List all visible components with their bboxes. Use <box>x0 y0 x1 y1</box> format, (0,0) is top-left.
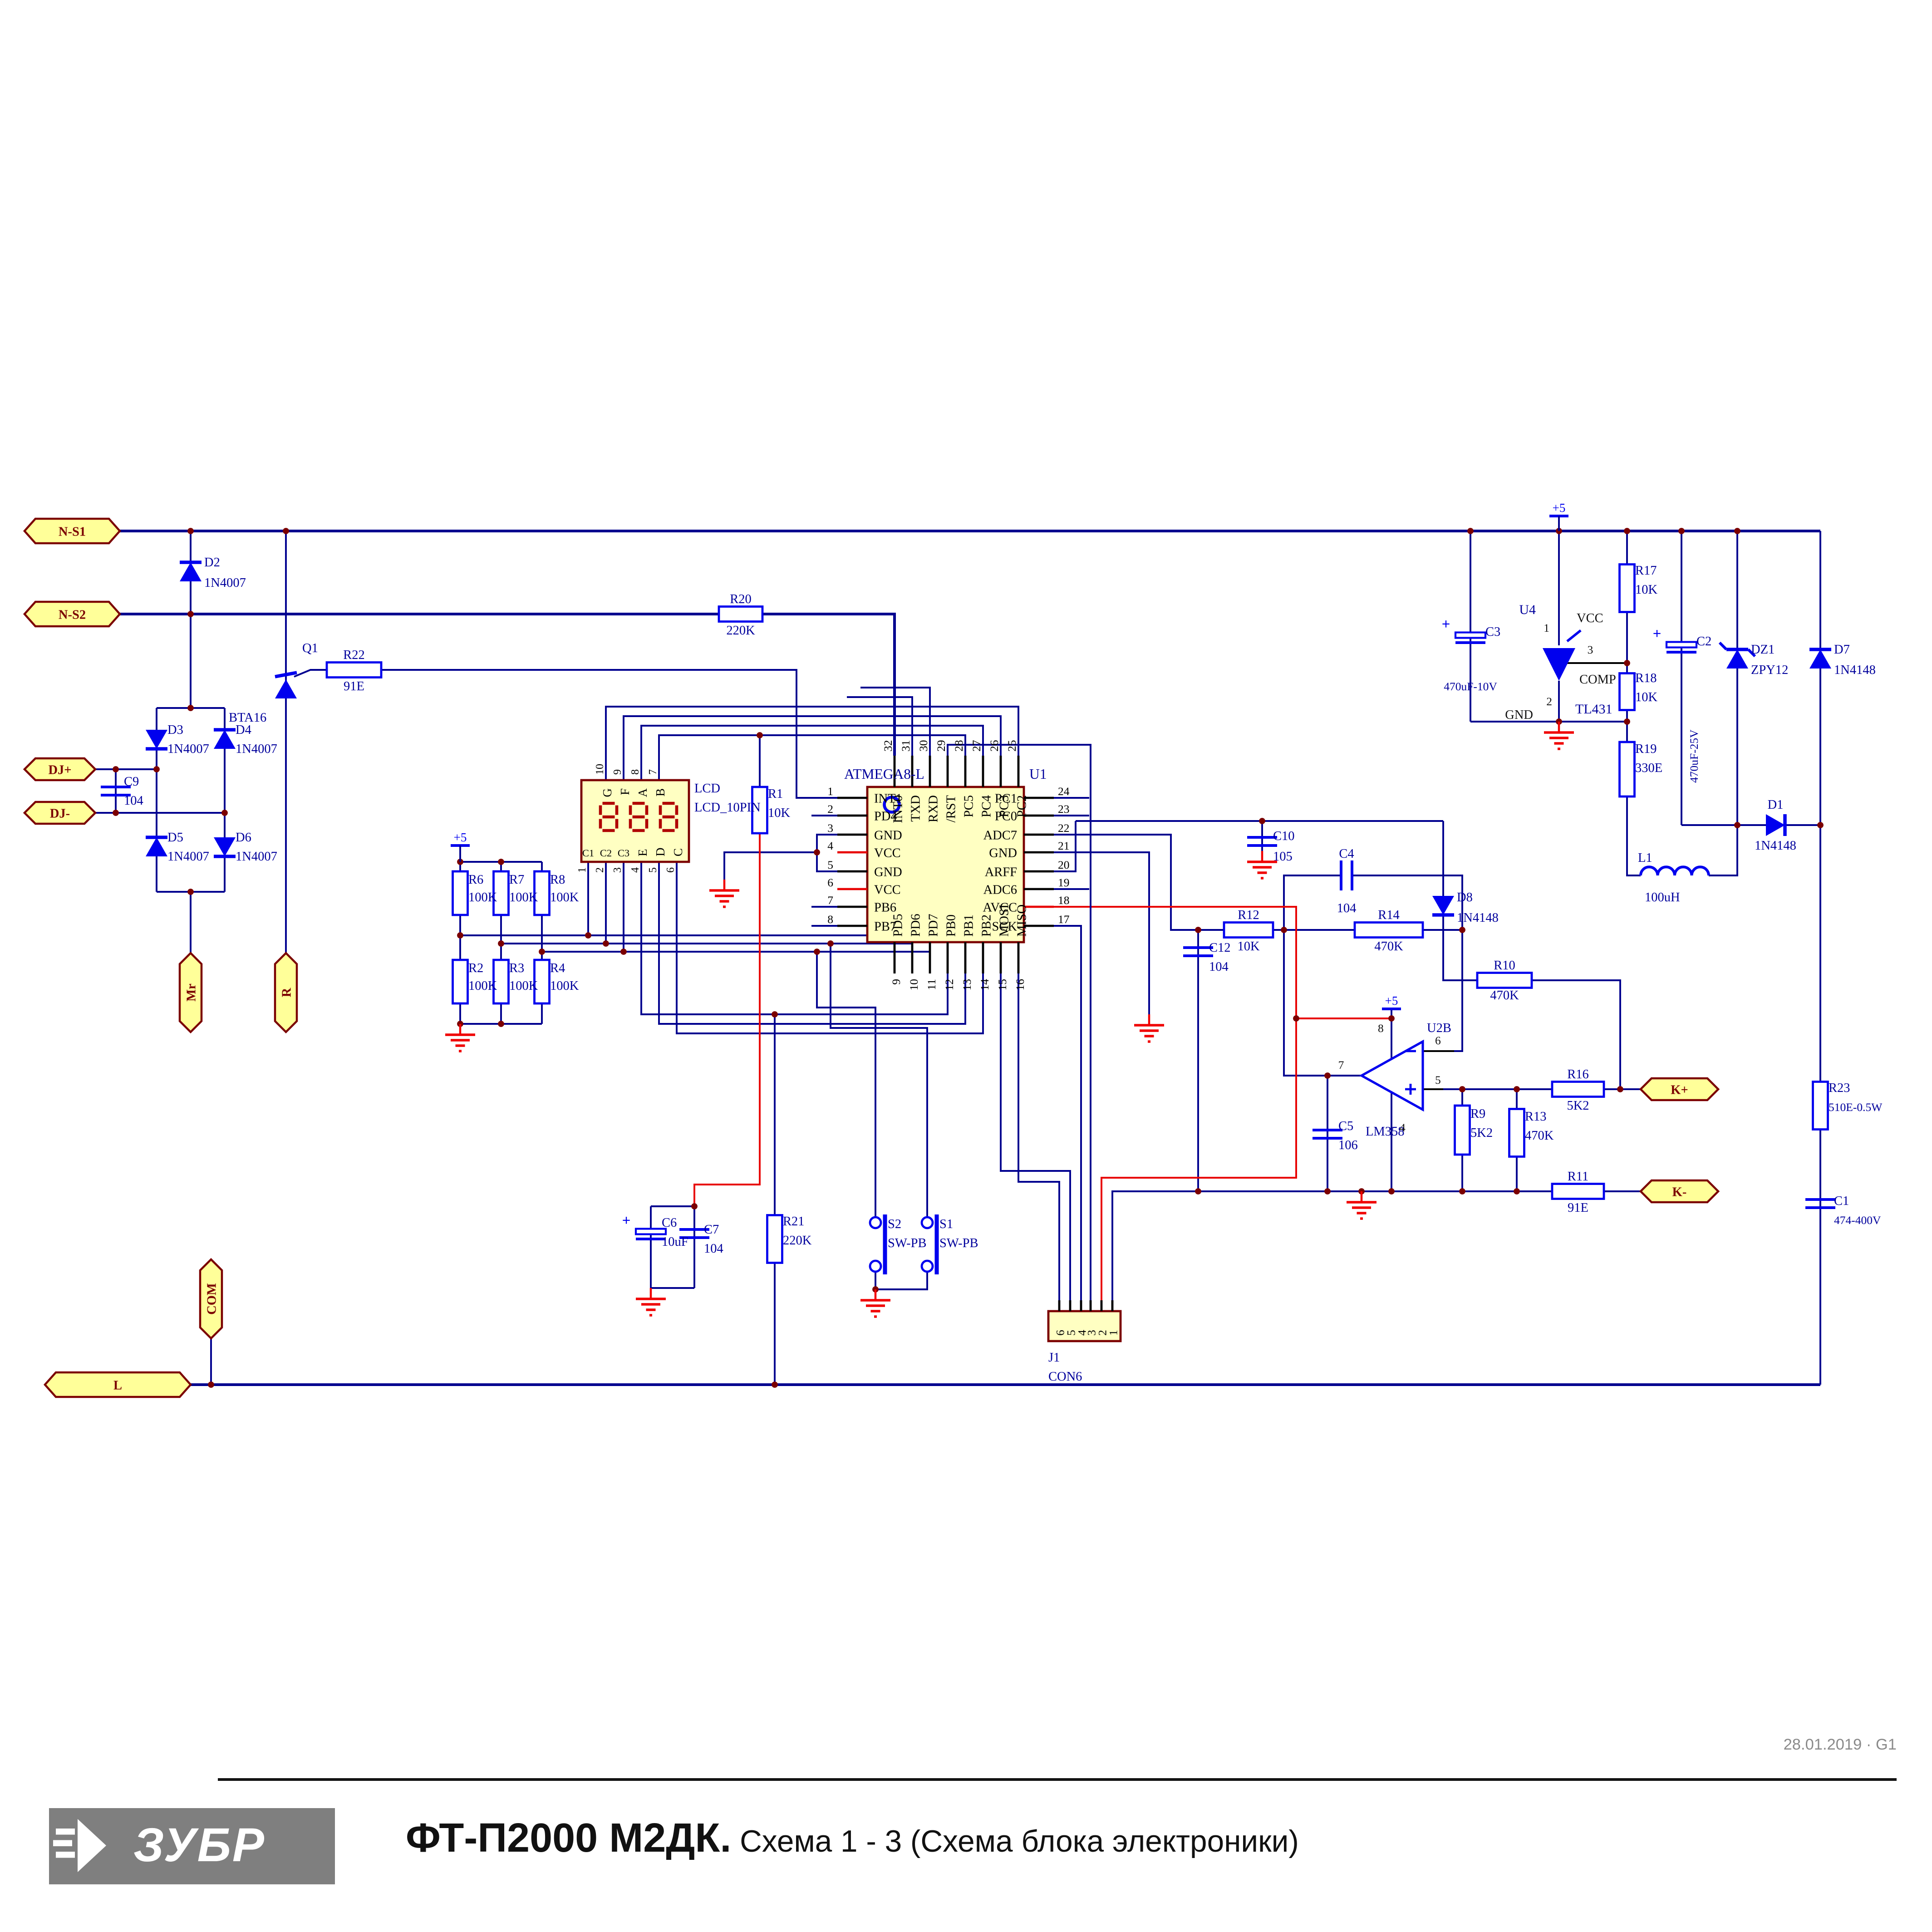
component-label: 510E-0.5W <box>1829 1101 1883 1114</box>
connector-label: N-S1 <box>59 525 86 539</box>
junction-dot <box>1624 718 1630 725</box>
connector-label: N-S2 <box>59 608 86 622</box>
lcd-pin-name: F <box>618 788 632 795</box>
wire <box>724 852 817 880</box>
junction-dot <box>1624 660 1630 666</box>
mcu-pin-name: PC3 <box>998 795 1012 817</box>
mcu-pin-name: VCC <box>874 883 901 897</box>
component-label: R14 <box>1378 908 1400 922</box>
revision-date: 28.01.2019 · G1 <box>1784 1737 1897 1754</box>
junction-dot <box>498 940 504 947</box>
schematic-canvas: +++1INT12PD43GND4VCC5GND6VCC7PB68PB724PC… <box>0 0 1932 1932</box>
resistor-R19 <box>1620 742 1635 796</box>
component-label: 1N4148 <box>1834 663 1876 677</box>
wire <box>1709 825 1737 875</box>
brand-arrow-icon <box>49 1811 133 1882</box>
component-label: 100K <box>509 979 538 993</box>
junction-dot <box>1459 1086 1465 1092</box>
wire <box>1054 835 1225 930</box>
mcu-pin-number: 17 <box>1058 913 1070 926</box>
mcu-pin-number: 23 <box>1058 802 1070 816</box>
page-title: ФТ-П2000 М2ДК. Схема 1 - 3 (Схема блока … <box>406 1816 1299 1863</box>
component-label: LCD <box>694 782 720 796</box>
mcu-pin-number: 3 <box>827 821 833 835</box>
mcu-pin-name: PD5 <box>891 914 905 937</box>
junction-dot <box>1617 1086 1623 1092</box>
lcd-pin-number: 6 <box>665 867 677 873</box>
component-label: U4 <box>1519 602 1536 617</box>
component-label: GND <box>1505 708 1533 722</box>
component-label: L1 <box>1638 851 1652 865</box>
component-label: 4 <box>1400 1121 1406 1134</box>
component-label: 220K <box>783 1234 812 1248</box>
component-label: R17 <box>1635 564 1657 578</box>
component-label: R20 <box>730 592 752 606</box>
junction-dot <box>814 849 820 855</box>
lcd-pin-name: E <box>636 849 649 857</box>
junction-dot <box>772 1381 778 1388</box>
diode-D4 <box>214 730 236 749</box>
component-label: R3 <box>509 961 524 975</box>
resistor-R12 <box>1224 923 1273 938</box>
component-label: 100K <box>468 890 497 905</box>
resistor-R20 <box>719 607 762 622</box>
mcu-pin-number: 4 <box>827 839 833 852</box>
resistor-R17 <box>1620 565 1635 612</box>
lcd-pin-number: 10 <box>594 764 606 775</box>
mcu-pin-number: 32 <box>881 740 895 752</box>
component-label: R8 <box>550 873 565 887</box>
component-label: C2 <box>1696 634 1711 649</box>
lcd-pin-number: 1 <box>576 867 588 873</box>
component-label: 91E <box>1568 1201 1588 1215</box>
junction-dot <box>113 766 119 772</box>
lcd-pin-number: 5 <box>647 867 659 873</box>
component-label: 100K <box>550 890 579 905</box>
component-label: SW-PB <box>939 1236 978 1250</box>
mcu-pin-number: 15 <box>996 979 1009 991</box>
mcu-pin-number: 2 <box>827 802 833 816</box>
resistor-R10 <box>1477 973 1532 988</box>
wire <box>1454 930 1462 1051</box>
component-label: 10K <box>1635 583 1658 597</box>
diode-D3 <box>146 730 167 749</box>
component-label: DZ1 <box>1751 643 1775 657</box>
wire <box>1018 973 1059 1300</box>
component-label: ATMEGA8-L <box>844 766 924 782</box>
junction-dot <box>498 859 504 865</box>
resistor-R22 <box>327 663 381 678</box>
component-label: 100uH <box>1645 890 1680 905</box>
component-label: 1N4007 <box>236 742 277 756</box>
component-label: R10 <box>1494 959 1515 973</box>
component-label: 1N4148 <box>1755 839 1796 853</box>
diode-D8 <box>1432 896 1454 915</box>
plus5-label: +5 <box>1553 501 1566 515</box>
junction-dot <box>585 932 591 939</box>
connector-label: K- <box>1672 1185 1687 1200</box>
tl431-U4 <box>1543 648 1575 681</box>
resistor-R13 <box>1509 1109 1524 1157</box>
component-label: D8 <box>1457 890 1473 905</box>
mcu-pin-number: 19 <box>1058 876 1070 889</box>
junction-dot <box>221 810 228 816</box>
component-label: C12 <box>1209 941 1231 955</box>
component-label: R2 <box>468 961 483 975</box>
component-label: 330E <box>1635 761 1662 775</box>
mcu-pin-name: PC4 <box>980 795 994 817</box>
mcu-pin-name: RXD <box>927 795 941 822</box>
component-label: 470K <box>1525 1129 1554 1143</box>
diode-D1 <box>1766 814 1785 836</box>
diode-D6 <box>214 837 236 856</box>
mcu-pin-number: 13 <box>960 979 973 991</box>
component-label: 470K <box>1374 939 1403 954</box>
resistor-R6 <box>453 871 468 915</box>
component-label: R18 <box>1635 671 1657 685</box>
component-label: 2 <box>1546 695 1552 708</box>
component-label: 1N4007 <box>204 576 246 590</box>
junction-dot <box>457 932 463 939</box>
junction-dot <box>283 528 289 534</box>
component-label: 104 <box>1209 960 1229 974</box>
resistor-R2 <box>453 960 468 1003</box>
title-model: ФТ-П2000 М2ДК. <box>406 1816 731 1861</box>
connector-label: L <box>113 1379 122 1393</box>
component-label: D3 <box>167 723 183 737</box>
component-label: U2B <box>1427 1021 1451 1035</box>
resistor-R16 <box>1552 1082 1604 1097</box>
component-label: BTA16 <box>229 711 266 725</box>
component-label: D6 <box>236 831 251 845</box>
component-label: VCC <box>1577 611 1603 625</box>
brand-logo: ЗУБР <box>49 1808 335 1884</box>
mcu-pin-name: MISO <box>1015 905 1029 937</box>
junction-dot <box>603 940 609 947</box>
mcu-pin-number: 28 <box>952 740 965 752</box>
component-label: 1N4007 <box>236 850 277 864</box>
component-label: LCD_10PIN <box>694 801 761 815</box>
component-label: S1 <box>939 1217 953 1231</box>
junction-dot <box>1324 1188 1331 1195</box>
component-label: CON6 <box>1048 1370 1082 1384</box>
mcu-pin-number: 21 <box>1058 839 1070 852</box>
junction-dot <box>498 1021 504 1027</box>
mcu-pin-name: PD7 <box>927 914 941 937</box>
wire <box>294 670 327 677</box>
wire <box>542 952 930 973</box>
mcu-pin-number: 27 <box>970 740 983 752</box>
mcu-pin-number: 25 <box>1005 740 1018 752</box>
mcu-pin-name: PB1 <box>962 914 976 937</box>
mcu-pin-number: 22 <box>1058 821 1070 835</box>
mcu-pin-name: INT0 <box>891 795 905 823</box>
lcd-pin-number: 3 <box>612 867 624 873</box>
mcu-pin-name: GND <box>874 829 902 843</box>
switch-S2 <box>870 1261 881 1272</box>
resistor-R18 <box>1620 673 1635 710</box>
mcu-pin-number: 8 <box>827 913 833 926</box>
mcu-pin-number: 11 <box>925 979 938 990</box>
title-block: ЗУБР ФТ-П2000 М2ДК. Схема 1 - 3 (Схема б… <box>0 1805 1932 1901</box>
lcd-pin-name: G <box>600 788 614 797</box>
tl431-ref <box>1567 630 1581 641</box>
junction-dot <box>827 940 834 947</box>
component-label: 5K2 <box>1567 1099 1589 1113</box>
mcu-pin-name: ARFF <box>985 865 1017 880</box>
junction-dot <box>1459 1188 1465 1195</box>
junction-dot <box>187 528 194 534</box>
lcd-pin-name: C2 <box>600 847 612 859</box>
mcu-pin-number: 5 <box>827 858 833 871</box>
component-label: 3 <box>1588 643 1593 656</box>
title-subtitle: Схема 1 - 3 (Схема блока электроники) <box>731 1824 1299 1858</box>
component-label: R1 <box>768 787 783 801</box>
triac-Q1 <box>275 673 297 677</box>
mcu-pin-number: 20 <box>1058 858 1070 871</box>
component-label: 5K2 <box>1470 1126 1493 1140</box>
component-label: C1 <box>1834 1194 1849 1208</box>
mcu-pin-name: PC5 <box>962 795 976 817</box>
j1-body <box>1048 1311 1121 1341</box>
connector-label: DJ- <box>50 807 70 821</box>
junction-dot <box>1678 528 1685 534</box>
mcu-pin-name: VCC <box>874 846 901 860</box>
resistor-R11 <box>1552 1184 1604 1199</box>
mcu-pin-number: 29 <box>934 740 948 752</box>
component-label: C5 <box>1338 1119 1353 1133</box>
lcd-pin-name: C <box>671 848 685 856</box>
wire <box>381 670 837 798</box>
component-label: 106 <box>1338 1138 1358 1152</box>
connector-label: DJ+ <box>48 763 71 777</box>
component-label: 220K <box>726 624 755 638</box>
mcu-pin-name: GND <box>989 846 1017 860</box>
junction-dot <box>1734 528 1740 534</box>
junction-dot <box>187 705 194 711</box>
component-label: 10K <box>1635 690 1658 704</box>
lcd-pin-number: 7 <box>647 769 659 775</box>
component-label: 8 <box>1378 1022 1384 1035</box>
plus5-label: +5 <box>454 831 467 844</box>
resistor-R9 <box>1455 1106 1470 1155</box>
capacitor-C3 <box>1455 633 1485 638</box>
mcu-pin-name: ADC7 <box>983 829 1017 843</box>
junction-dot <box>153 766 160 772</box>
mcu-pin-number: 31 <box>899 740 912 752</box>
diode-D7 <box>1809 649 1831 669</box>
capacitor-C2 <box>1667 642 1696 648</box>
component-label: 470uF-25V <box>1687 729 1701 783</box>
junction-dot <box>620 949 627 955</box>
component-label: Q1 <box>302 641 318 655</box>
component-label: 10K <box>768 806 791 820</box>
component-label: R11 <box>1568 1170 1588 1184</box>
component-label: 104 <box>1337 901 1357 915</box>
brand-name: ЗУБР <box>133 1819 265 1873</box>
mcu-pin-number: 16 <box>1013 979 1027 991</box>
component-label: 1N4148 <box>1457 911 1499 925</box>
mcu-pin-name: PB0 <box>944 914 959 937</box>
component-label: R16 <box>1567 1067 1589 1082</box>
component-label: R6 <box>468 873 483 887</box>
component-label: R21 <box>783 1214 805 1229</box>
triac-Q1 <box>275 679 297 698</box>
footer-divider <box>218 1778 1897 1780</box>
component-label: 91E <box>344 679 364 693</box>
component-label: 104 <box>124 794 143 808</box>
junction-dot <box>187 611 194 617</box>
lcd-pin-number: 2 <box>594 867 606 873</box>
plus-mark: + <box>1442 616 1450 633</box>
junction-dot <box>1459 927 1465 933</box>
plus-mark: + <box>622 1213 631 1229</box>
component-label: 10uF <box>662 1235 688 1249</box>
lcd-pin-number: 4 <box>629 867 641 873</box>
junction-dot <box>1467 528 1474 534</box>
junction-dot <box>1388 1188 1395 1195</box>
component-label: R13 <box>1525 1110 1547 1124</box>
resistor-R21 <box>767 1215 782 1263</box>
lcd-pin-name: C1 <box>582 847 594 859</box>
mcu-pin-name: PB6 <box>874 901 896 915</box>
component-label: R22 <box>343 648 365 662</box>
junction-dot <box>814 949 820 955</box>
mcu-pin-number: 1 <box>827 785 833 798</box>
lcd-pin-number: 9 <box>612 769 624 775</box>
component-label: C4 <box>1339 847 1354 861</box>
junction-dot <box>1817 822 1824 828</box>
junction-dot <box>539 949 545 955</box>
component-label: 470uF-10V <box>1444 680 1497 693</box>
component-label: 474-400V <box>1834 1214 1881 1227</box>
switch-S2 <box>870 1217 881 1228</box>
component-label: 470K <box>1490 988 1519 1003</box>
component-label: U1 <box>1029 766 1047 782</box>
mcu-pin-number: 30 <box>917 740 930 752</box>
resistor-R23 <box>1813 1082 1828 1130</box>
mcu-pin-number: 9 <box>890 979 903 985</box>
junction-dot <box>757 732 763 738</box>
junction-dot <box>1281 927 1287 933</box>
switch-S1 <box>922 1261 933 1272</box>
junction-dot <box>187 889 194 895</box>
component-label: D4 <box>236 723 251 737</box>
schematic-page: +++1INT12PD43GND4VCC5GND6VCC7PB68PB724PC… <box>0 0 1932 1932</box>
component-label: C10 <box>1273 829 1295 843</box>
component-label: C9 <box>124 775 139 789</box>
mcu-pin-name: MOSI <box>998 905 1012 937</box>
component-label: 1N4007 <box>167 742 209 756</box>
component-label: 1N4007 <box>167 850 209 864</box>
mcu-pin-name: PB2 <box>980 914 994 937</box>
mcu-pin-number: 6 <box>827 876 833 889</box>
component-label: R19 <box>1635 742 1657 756</box>
connector-label: Mr <box>185 983 199 1002</box>
connector-label: K+ <box>1671 1083 1688 1097</box>
lcd-pin-number: 8 <box>629 769 641 775</box>
mcu-pin-name: GND <box>874 865 902 880</box>
component-label: 100K <box>509 890 538 905</box>
mcu-pin-name: PC2 <box>1015 795 1029 817</box>
junction-dot <box>1388 1015 1395 1022</box>
component-label: C3 <box>1485 625 1500 639</box>
junction-dot <box>113 810 119 816</box>
wire <box>1284 875 1341 930</box>
mcu-pin-number: 12 <box>943 979 956 991</box>
component-label: 100K <box>550 979 579 993</box>
component-label: C7 <box>704 1223 719 1237</box>
junction-dot <box>1734 822 1740 828</box>
component-label: 6 <box>1435 1034 1441 1047</box>
junction-dot <box>208 1381 214 1388</box>
junction-dot <box>1259 818 1265 824</box>
component-label: R12 <box>1238 908 1259 922</box>
component-label: D7 <box>1834 643 1850 657</box>
junction-dot <box>1624 528 1630 534</box>
zener-tick <box>1720 643 1726 649</box>
junction-dot <box>1324 1072 1331 1079</box>
component-label: ZPY12 <box>1751 663 1788 677</box>
component-label: 10K <box>1237 939 1260 954</box>
j1-pin-number: 1 <box>1107 1330 1120 1336</box>
junction-dot <box>691 1203 698 1209</box>
wire <box>1112 1191 1198 1300</box>
junction-dot <box>1195 927 1201 933</box>
switch-S1 <box>922 1217 933 1228</box>
mcu-pin-number: 26 <box>988 740 1001 752</box>
component-label: LM358 <box>1366 1125 1405 1139</box>
plus-mark: + <box>1653 626 1662 642</box>
mcu-pin-number: 18 <box>1058 894 1070 907</box>
component-label: 105 <box>1273 850 1293 864</box>
component-label: R9 <box>1470 1107 1485 1121</box>
junction-dot <box>1293 1015 1299 1022</box>
diode-D5 <box>146 837 167 856</box>
component-label: COMP <box>1579 673 1616 687</box>
junction-dot <box>772 1011 778 1018</box>
mcu-pin-number: 7 <box>827 894 833 907</box>
wire <box>641 726 983 780</box>
wire <box>1054 926 1081 1300</box>
component-label: C6 <box>662 1216 677 1230</box>
lcd-pin-name: D <box>654 848 667 857</box>
mcu-pin-name: ADC6 <box>983 883 1017 897</box>
component-label: SW-PB <box>888 1236 927 1250</box>
inductor-L1 <box>1641 867 1709 875</box>
mcu-pin-name: /RST <box>944 795 959 822</box>
connector-label: COM <box>205 1283 219 1315</box>
lcd-pin-name: C3 <box>618 847 629 859</box>
plus5-label: +5 <box>1385 994 1398 1008</box>
connector-label: R <box>280 988 294 997</box>
component-label: D1 <box>1768 798 1784 812</box>
component-label: R23 <box>1829 1081 1850 1095</box>
diode-D2 <box>180 562 202 581</box>
resistor-R14 <box>1355 923 1423 938</box>
mcu-pin-number: 14 <box>978 979 991 991</box>
mcu-pin-name: TXD <box>909 795 923 822</box>
mcu-pin-number: 10 <box>907 979 920 991</box>
component-label: 100K <box>468 979 497 993</box>
component-label: J1 <box>1048 1351 1060 1365</box>
junction-dot <box>1514 1086 1520 1092</box>
lcd-pin-name: A <box>636 788 649 797</box>
component-label: TL431 <box>1575 702 1612 717</box>
lcd-pin-name: B <box>654 788 667 796</box>
junction-dot <box>1195 1188 1201 1195</box>
component-label: 5 <box>1435 1073 1441 1086</box>
